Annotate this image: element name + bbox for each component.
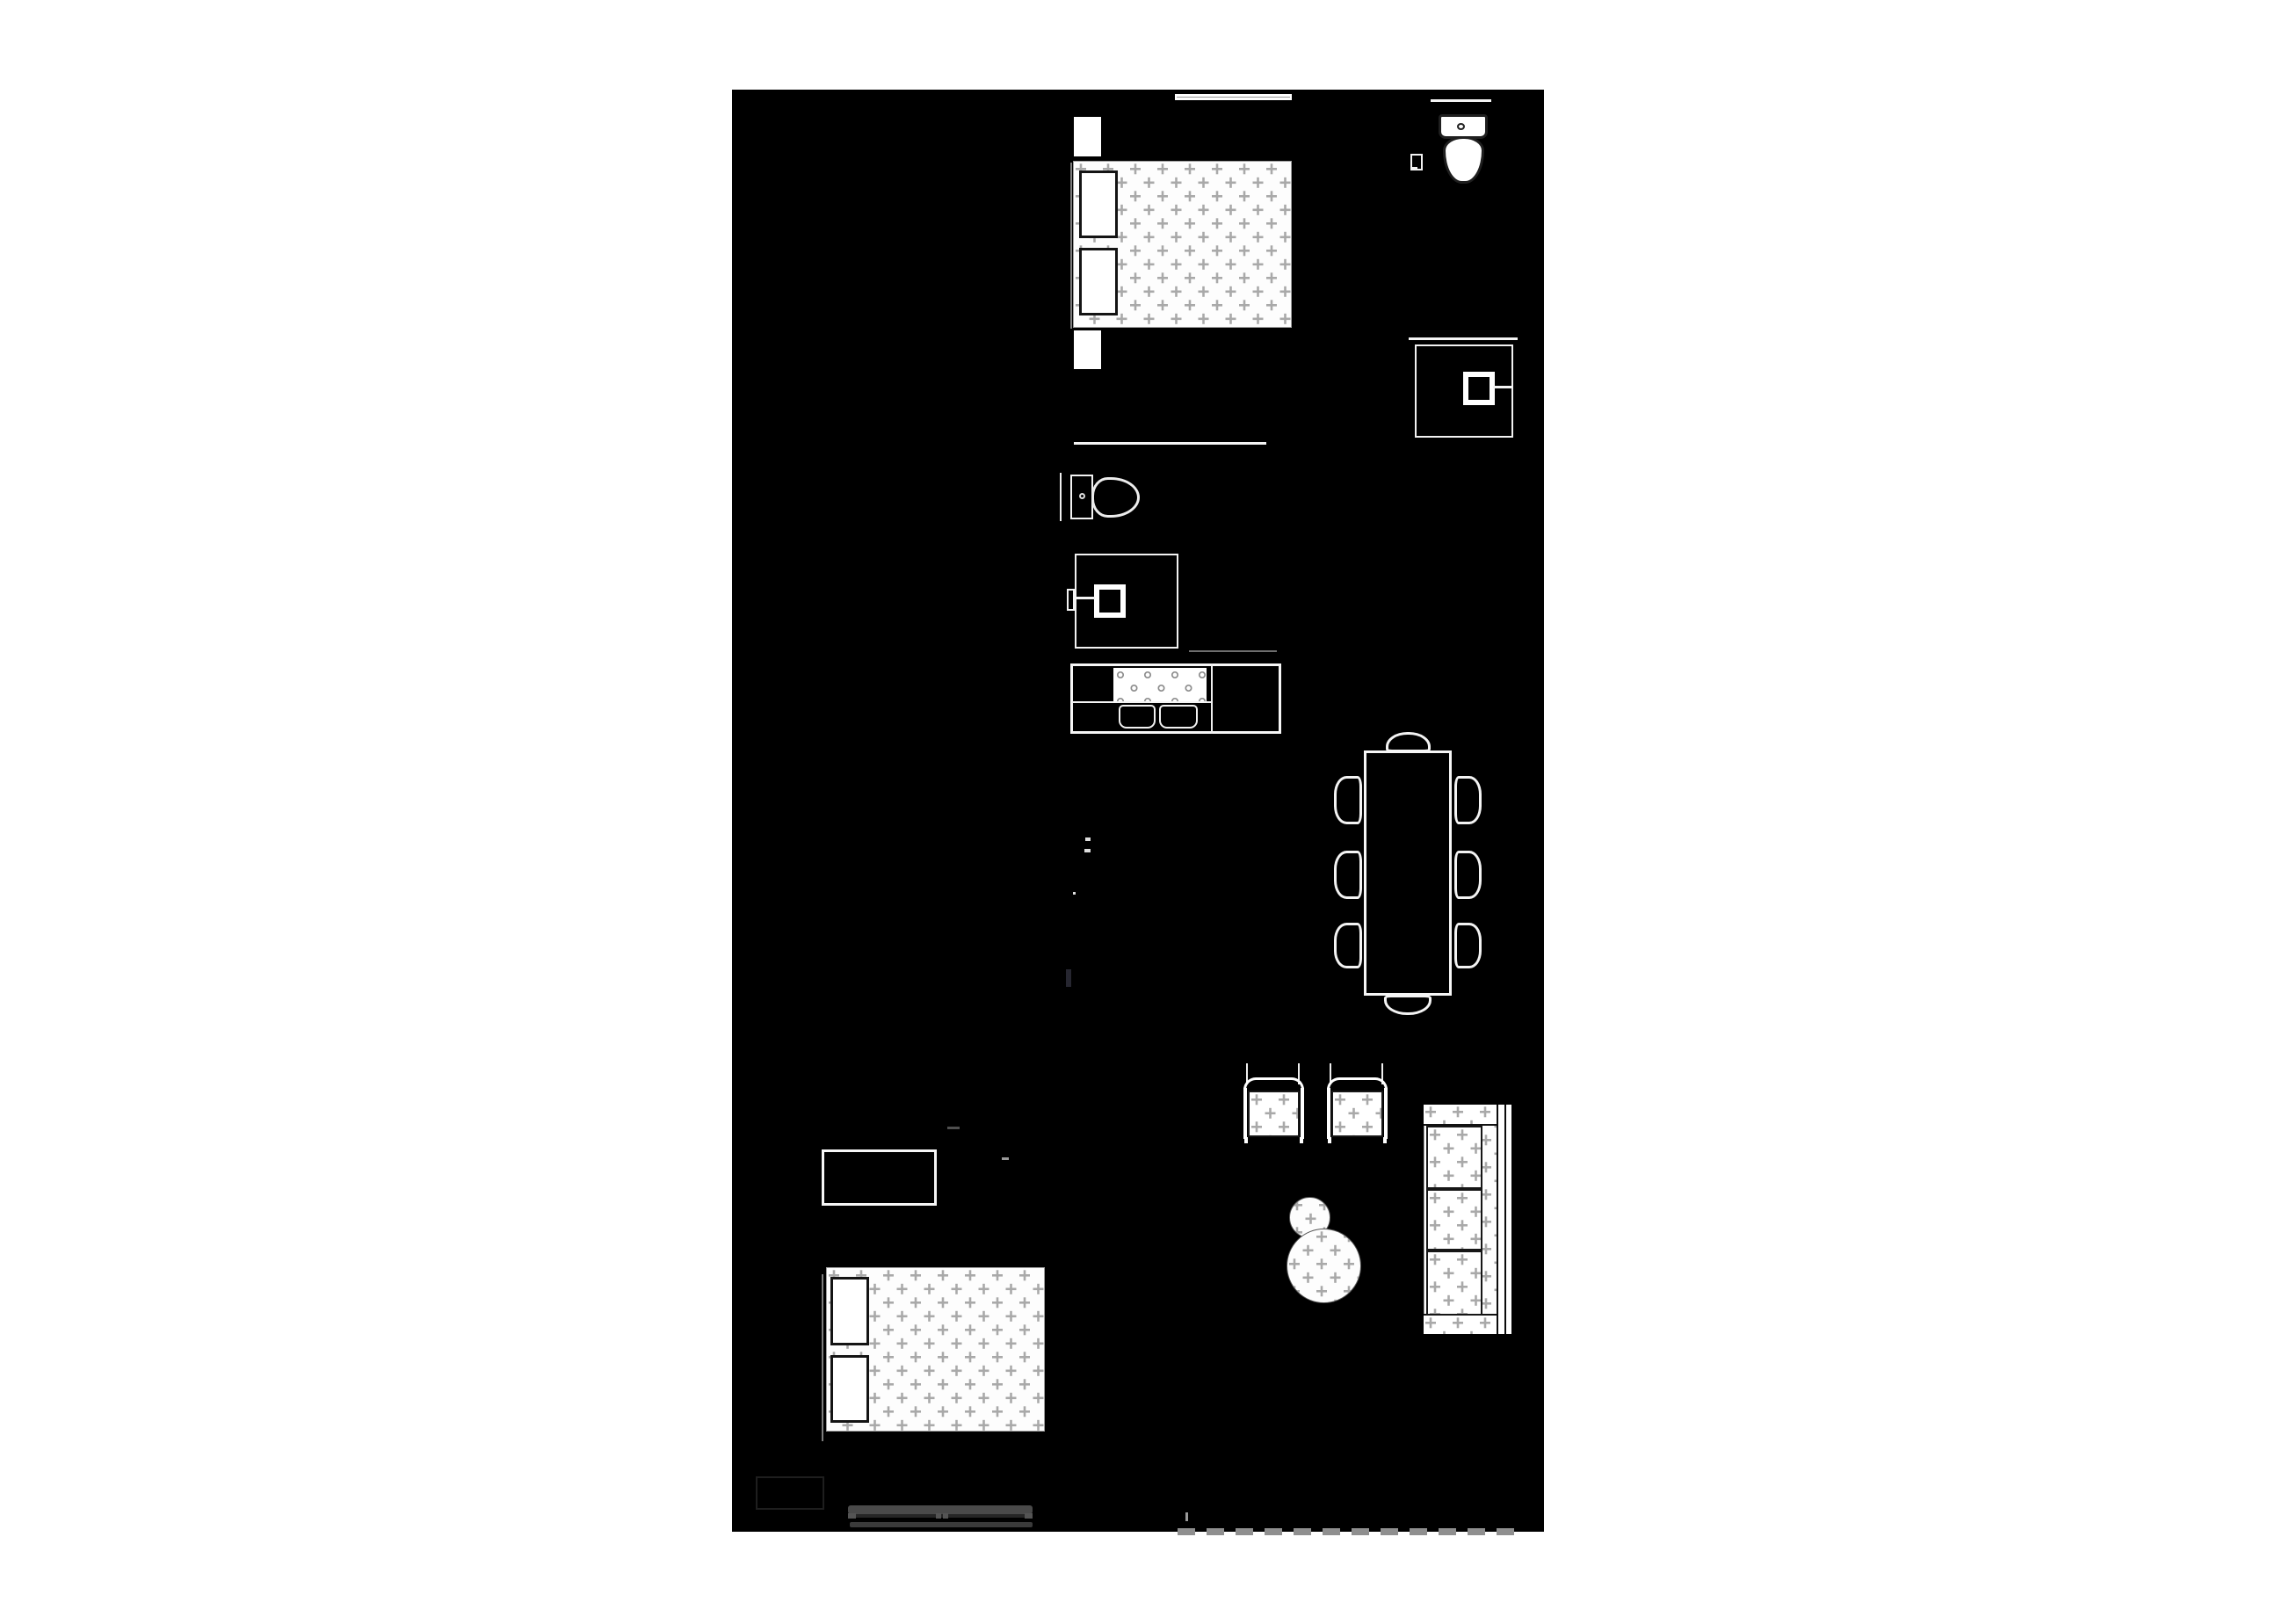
table-round xyxy=(1289,1197,1330,1238)
counter-faint-line xyxy=(1189,650,1277,652)
back-band xyxy=(1327,1077,1388,1093)
dash-tick xyxy=(1185,1512,1188,1521)
wall-line xyxy=(1074,442,1266,445)
threshold-dashes xyxy=(732,90,1544,1532)
dining-chair-left-2 xyxy=(732,90,1544,1532)
dining-chair-right-2 xyxy=(732,90,1544,1532)
dot-pattern-fill xyxy=(1113,668,1207,702)
dining-chair-right-3 xyxy=(732,90,1544,1532)
cross-pattern-fill xyxy=(1290,1198,1330,1237)
pillow xyxy=(1079,248,1118,315)
armrest xyxy=(1327,1088,1330,1139)
nightstand xyxy=(1074,330,1101,369)
mattress xyxy=(1073,161,1292,328)
back-leg xyxy=(1246,1063,1248,1084)
chair xyxy=(1386,732,1431,752)
back-leg xyxy=(1381,1063,1383,1084)
counter-outline xyxy=(1070,663,1281,734)
console-cap xyxy=(936,1513,941,1519)
sofa-cushion xyxy=(1426,1126,1482,1189)
window-bar-line xyxy=(1177,97,1290,98)
armchair-2 xyxy=(732,90,1544,1532)
bowl xyxy=(1091,477,1140,518)
chair xyxy=(1454,923,1482,968)
faint-blue-mark xyxy=(1066,969,1071,987)
cross-pattern-fill xyxy=(1428,1127,1481,1187)
sofa xyxy=(732,90,1544,1532)
dining-chair-left-1 xyxy=(732,90,1544,1532)
shower-tray xyxy=(1075,554,1178,649)
closet-outline xyxy=(756,1476,824,1510)
bed-second xyxy=(732,90,1544,1532)
window-bar xyxy=(1175,94,1292,100)
cross-pattern-fill xyxy=(1424,1316,1497,1334)
foot xyxy=(1244,1137,1248,1143)
coffee-table-small xyxy=(732,90,1544,1532)
console-track xyxy=(852,1514,1030,1518)
cistern-shelf-line xyxy=(1431,99,1491,102)
cross-pattern-fill xyxy=(1074,162,1291,327)
cross-pattern-fill xyxy=(1287,1229,1360,1302)
cross-pattern-fill xyxy=(1333,1092,1381,1135)
counter-dotted-top xyxy=(1113,668,1207,702)
console-cap xyxy=(943,1513,948,1519)
shower-2 xyxy=(732,90,1544,1532)
desk-dresser xyxy=(732,90,1544,1532)
armrest xyxy=(1243,1088,1247,1139)
cross-pattern-fill xyxy=(827,1268,1044,1431)
dining-chair-bottom xyxy=(732,90,1544,1532)
closet-faint xyxy=(732,90,1544,1532)
glass-line xyxy=(1409,337,1518,340)
chair xyxy=(1454,776,1482,824)
armrest xyxy=(1384,1088,1388,1139)
gray-dash xyxy=(1002,1157,1009,1160)
page: { "meta": { "drawing_type": "apartment-f… xyxy=(0,0,2276,1624)
toilet-1 xyxy=(732,90,1544,1532)
chair xyxy=(1334,776,1362,824)
flush-button xyxy=(1079,493,1085,499)
bowl xyxy=(1443,136,1484,184)
foot xyxy=(1383,1137,1387,1143)
back-band xyxy=(1243,1077,1304,1093)
chair xyxy=(1334,851,1362,899)
armchair-1 xyxy=(732,90,1544,1532)
white-dot xyxy=(1085,837,1091,841)
headboard-line xyxy=(1070,163,1072,329)
holder-base xyxy=(1410,167,1417,170)
shower-1 xyxy=(732,90,1544,1532)
sofa-back-rail xyxy=(1497,1105,1504,1334)
drain-link xyxy=(1074,597,1095,599)
cistern xyxy=(1439,114,1488,139)
console-cap xyxy=(848,1513,856,1519)
foot xyxy=(1328,1137,1331,1143)
cross-pattern-fill xyxy=(1250,1092,1298,1135)
sink-basin xyxy=(1159,705,1198,729)
nightstand-top xyxy=(732,90,1544,1532)
white-dot xyxy=(1073,892,1076,895)
floor-plan-canvas xyxy=(732,90,1544,1532)
dining-chair-top xyxy=(732,90,1544,1532)
valve xyxy=(1067,589,1075,611)
mattress xyxy=(826,1267,1045,1432)
sofa-back-rail xyxy=(1504,1105,1511,1334)
drain-square xyxy=(1463,372,1495,405)
flush-button xyxy=(1457,123,1465,130)
vanity-counter xyxy=(732,90,1544,1532)
white-dot xyxy=(1084,849,1091,852)
seat-cushion xyxy=(1248,1091,1300,1137)
back-leg xyxy=(1330,1063,1331,1084)
cross-pattern-fill xyxy=(1428,1252,1481,1314)
bed-master xyxy=(732,90,1544,1532)
counter-divider xyxy=(1211,663,1213,734)
foot xyxy=(1300,1137,1303,1143)
pillow xyxy=(830,1355,869,1423)
shower-tray xyxy=(1415,344,1513,438)
sofa-armrest-top xyxy=(1424,1105,1497,1126)
headboard-line xyxy=(822,1274,823,1441)
tank xyxy=(1070,475,1093,519)
media-console xyxy=(732,90,1544,1532)
sofa-armrest-bottom xyxy=(1424,1314,1497,1334)
sink-basin xyxy=(1119,705,1156,729)
console-bar xyxy=(848,1505,1033,1514)
window-top xyxy=(732,90,1544,1532)
faint-dash xyxy=(947,1127,960,1129)
toilet-paper-holder xyxy=(732,90,1544,1532)
dashed-strip xyxy=(1178,1528,1518,1535)
dining-chair-right-1 xyxy=(732,90,1544,1532)
nightstand xyxy=(1074,117,1101,156)
bathroom2-wall-line xyxy=(732,90,1544,1532)
pillow xyxy=(1079,170,1118,238)
counter-mid-line xyxy=(1070,701,1213,703)
chair xyxy=(1454,851,1482,899)
sofa-cushion xyxy=(1426,1251,1482,1316)
toilet-2 xyxy=(732,90,1544,1532)
seat-cushion xyxy=(1331,1091,1383,1137)
table-top xyxy=(1364,750,1452,996)
console-cap xyxy=(1025,1513,1033,1519)
chair xyxy=(1384,995,1432,1015)
holder-outline xyxy=(1410,154,1423,170)
drain-square xyxy=(1094,584,1126,618)
sofa-deck xyxy=(1424,1105,1511,1334)
wall-line xyxy=(1060,473,1062,521)
table-round xyxy=(1287,1229,1361,1303)
cross-pattern-fill xyxy=(1428,1191,1481,1249)
cross-pattern-fill xyxy=(1424,1106,1511,1333)
console-lower-bar xyxy=(850,1522,1033,1527)
coffee-table-large xyxy=(732,90,1544,1532)
desk-outline xyxy=(822,1149,937,1206)
dining-table xyxy=(732,90,1544,1532)
small-marks xyxy=(732,90,1544,1532)
nightstand-bottom xyxy=(732,90,1544,1532)
sofa-cushion xyxy=(1426,1189,1482,1251)
pillow xyxy=(830,1277,869,1345)
armrest xyxy=(1301,1088,1304,1139)
dining-chair-left-3 xyxy=(732,90,1544,1532)
drain-link xyxy=(1493,386,1513,388)
cross-pattern-fill xyxy=(1424,1105,1497,1124)
back-leg xyxy=(1298,1063,1300,1084)
chair xyxy=(1334,923,1362,968)
